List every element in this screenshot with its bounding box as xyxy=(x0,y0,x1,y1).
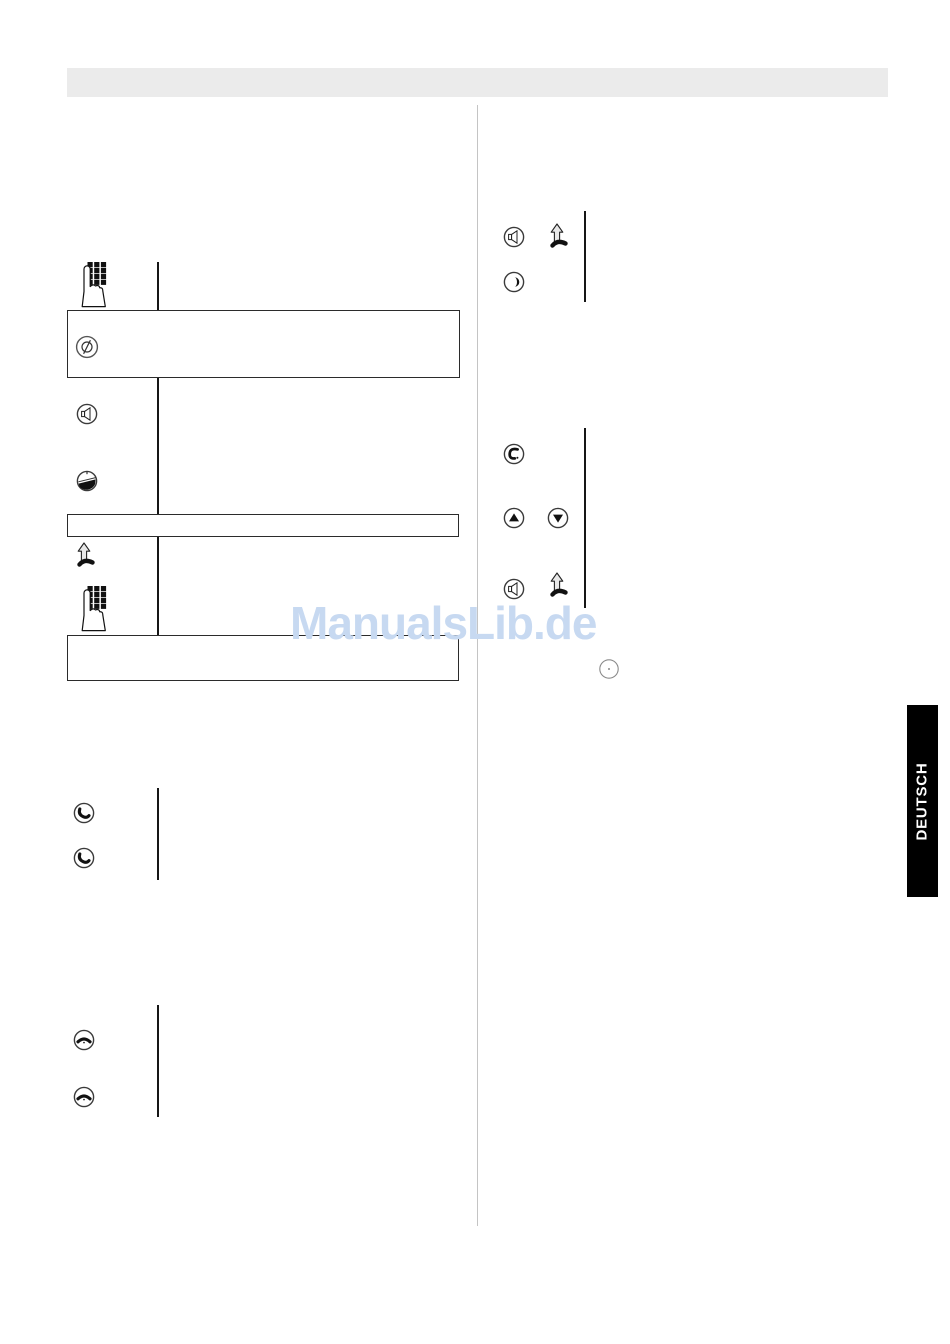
watermark: ManualsLib.de xyxy=(290,600,596,646)
phone-call-icon xyxy=(503,443,525,465)
step-connector-line xyxy=(157,1005,159,1117)
keypad-press-icon xyxy=(80,586,108,633)
step-connector-line xyxy=(157,378,159,514)
header-bar xyxy=(67,68,888,97)
step-connector-line xyxy=(157,262,159,311)
note-box xyxy=(67,514,459,537)
keypad-press-icon xyxy=(80,262,108,309)
lift-handset-icon xyxy=(546,223,570,249)
blocked-icon xyxy=(75,335,99,359)
answer-call-icon xyxy=(73,847,95,869)
handset-down-icon xyxy=(76,470,98,492)
language-tab-label: DEUTSCH xyxy=(914,762,931,840)
key-circle-icon xyxy=(598,658,620,680)
speaker-icon xyxy=(503,226,525,248)
note-box xyxy=(67,310,460,378)
manual-page: ManualsLib.de DEUTSCH xyxy=(0,0,950,1344)
step-connector-line xyxy=(157,537,159,636)
scroll-down-icon xyxy=(547,507,569,529)
hang-up-icon xyxy=(73,1086,95,1108)
column-divider xyxy=(477,105,478,1226)
language-tab-deutsch: DEUTSCH xyxy=(907,705,938,897)
hang-up-icon xyxy=(73,1029,95,1051)
contrast-icon xyxy=(503,271,525,293)
lift-handset-icon xyxy=(73,542,97,568)
step-connector-line xyxy=(157,788,159,880)
scroll-up-icon xyxy=(503,507,525,529)
step-connector-line xyxy=(584,428,586,608)
speaker-icon xyxy=(76,403,98,425)
lift-handset-icon xyxy=(546,572,570,598)
answer-call-icon xyxy=(73,802,95,824)
step-connector-line xyxy=(584,211,586,302)
